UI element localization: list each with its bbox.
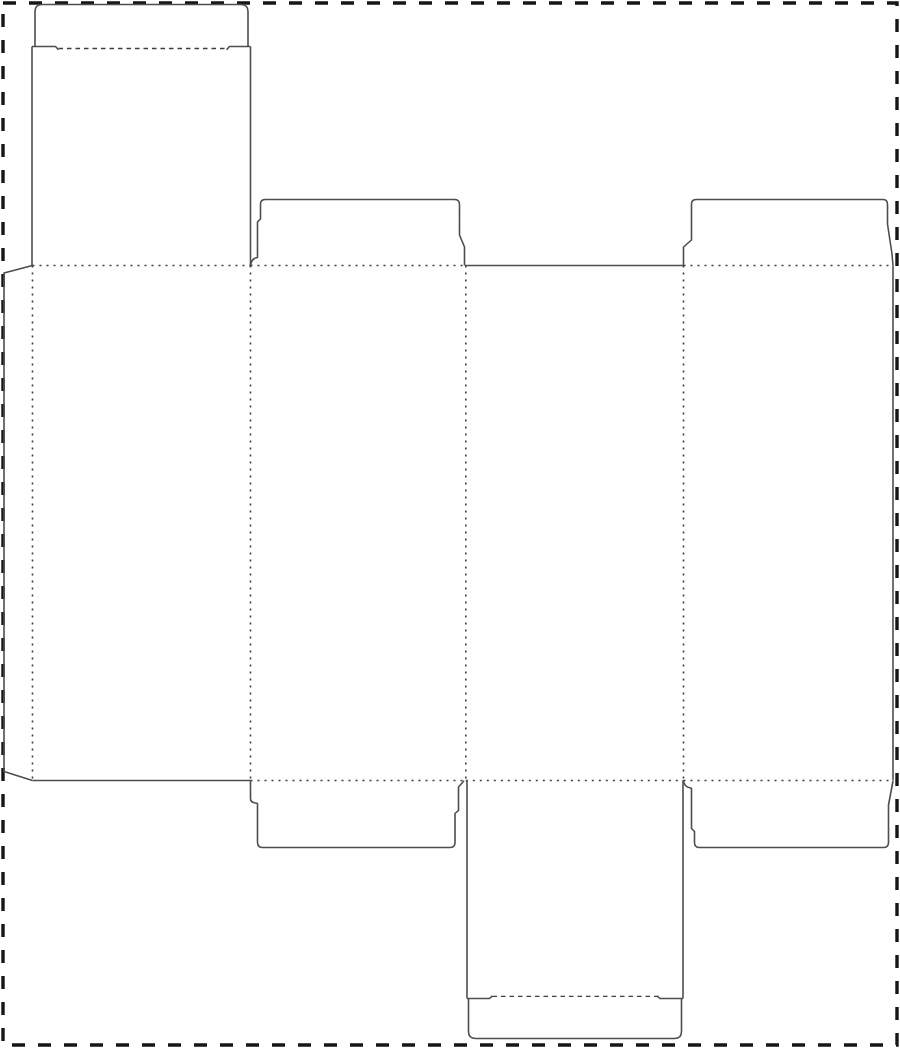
- top-dust-flap-right-cut: [684, 200, 894, 266]
- top-dust-flap-left-cut: [251, 200, 465, 266]
- bottom-dust-flap-left-cut: [251, 781, 465, 848]
- top-tuck-lid-cut: [35, 5, 248, 47]
- bottom-tuck-shoulder-left-cut: [467, 996, 493, 999]
- page-dashed-border: [3, 3, 897, 1045]
- top-tuck-shoulder-right-cut: [227, 47, 251, 50]
- bottom-tuck-shoulder-right-cut: [657, 996, 683, 999]
- bottom-dust-flap-right-cut: [684, 781, 894, 848]
- bottom-tuck-lid-cut: [469, 999, 682, 1039]
- top-tuck-shoulder-left-cut: [32, 47, 59, 50]
- box-dieline-drawing: [0, 0, 900, 1048]
- glue-flap-cut: [4, 266, 33, 781]
- dieline-page: [0, 0, 900, 1048]
